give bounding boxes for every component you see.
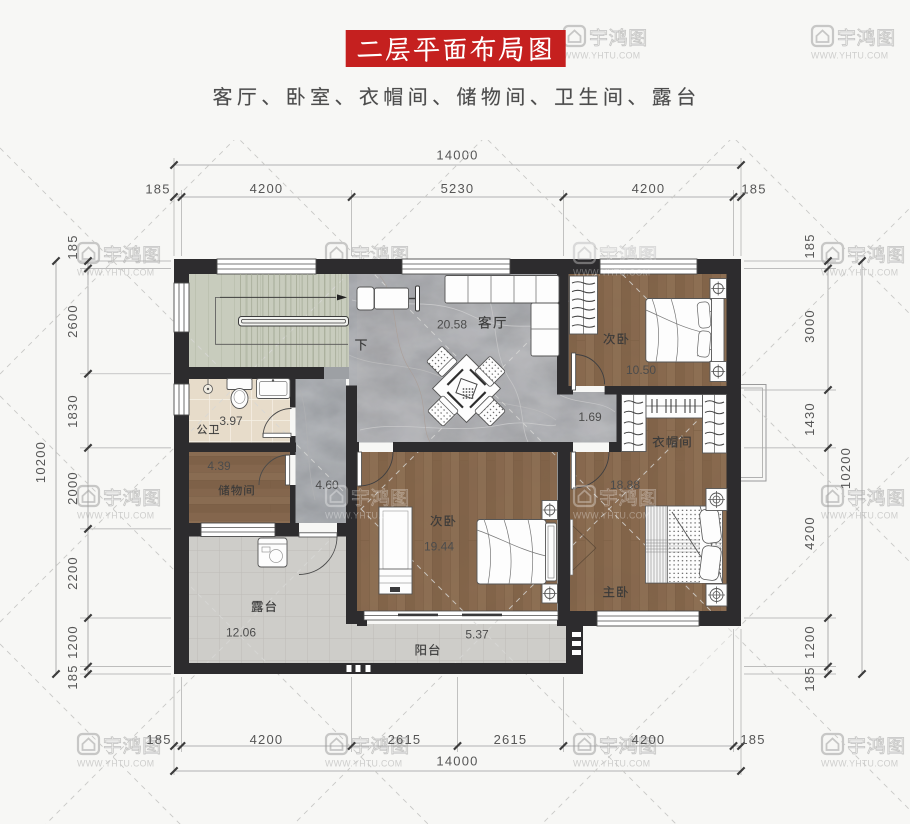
svg-text:10200: 10200: [838, 447, 853, 489]
svg-text:185: 185: [65, 234, 80, 259]
svg-text:12.06: 12.06: [226, 626, 256, 640]
svg-text:4200: 4200: [632, 732, 666, 747]
svg-text:WWW.YHTU.COM: WWW.YHTU.COM: [573, 511, 650, 521]
svg-text:185: 185: [145, 182, 170, 197]
svg-text:3000: 3000: [802, 309, 817, 343]
svg-text:1.69: 1.69: [578, 410, 602, 424]
svg-text:185: 185: [741, 182, 766, 197]
svg-text:2200: 2200: [65, 556, 80, 590]
svg-text:4.39: 4.39: [207, 459, 231, 473]
svg-text:185: 185: [65, 664, 80, 689]
svg-text:20.58: 20.58: [437, 318, 467, 332]
svg-text:14000: 14000: [436, 754, 478, 769]
svg-text:4200: 4200: [802, 516, 817, 550]
svg-text:WWW.YHTU.COM: WWW.YHTU.COM: [821, 268, 898, 278]
svg-text:WWW.YHTU.COM: WWW.YHTU.COM: [325, 511, 402, 521]
svg-text:WWW.YHTU.COM: WWW.YHTU.COM: [821, 759, 898, 769]
svg-text:WWW.YHTU.COM: WWW.YHTU.COM: [821, 511, 898, 521]
svg-text:19.44: 19.44: [424, 540, 454, 554]
svg-text:185: 185: [802, 666, 817, 691]
svg-text:1200: 1200: [802, 625, 817, 659]
svg-text:5.37: 5.37: [465, 628, 489, 642]
svg-text:185: 185: [802, 233, 817, 258]
svg-text:4200: 4200: [250, 732, 284, 747]
svg-text:1830: 1830: [65, 394, 80, 428]
svg-text:WWW.YHTU.COM: WWW.YHTU.COM: [811, 51, 888, 61]
svg-text:10.50: 10.50: [626, 363, 656, 377]
svg-text:5230: 5230: [441, 181, 475, 196]
svg-text:2615: 2615: [494, 732, 528, 747]
svg-text:WWW.YHTU.COM: WWW.YHTU.COM: [563, 51, 640, 61]
svg-text:10200: 10200: [33, 441, 48, 483]
svg-text:WWW.YHTU.COM: WWW.YHTU.COM: [573, 268, 650, 278]
svg-text:3.97: 3.97: [219, 414, 243, 428]
svg-text:2000: 2000: [65, 471, 80, 505]
svg-text:4200: 4200: [632, 181, 666, 196]
svg-text:14000: 14000: [436, 148, 478, 163]
svg-text:1430: 1430: [802, 402, 817, 436]
svg-text:1200: 1200: [65, 625, 80, 659]
svg-text:WWW.YHTU.COM: WWW.YHTU.COM: [573, 759, 650, 769]
svg-text:2600: 2600: [65, 304, 80, 338]
svg-text:185: 185: [146, 732, 171, 747]
svg-text:185: 185: [740, 732, 765, 747]
svg-text:2615: 2615: [388, 732, 422, 747]
svg-text:4200: 4200: [250, 181, 284, 196]
